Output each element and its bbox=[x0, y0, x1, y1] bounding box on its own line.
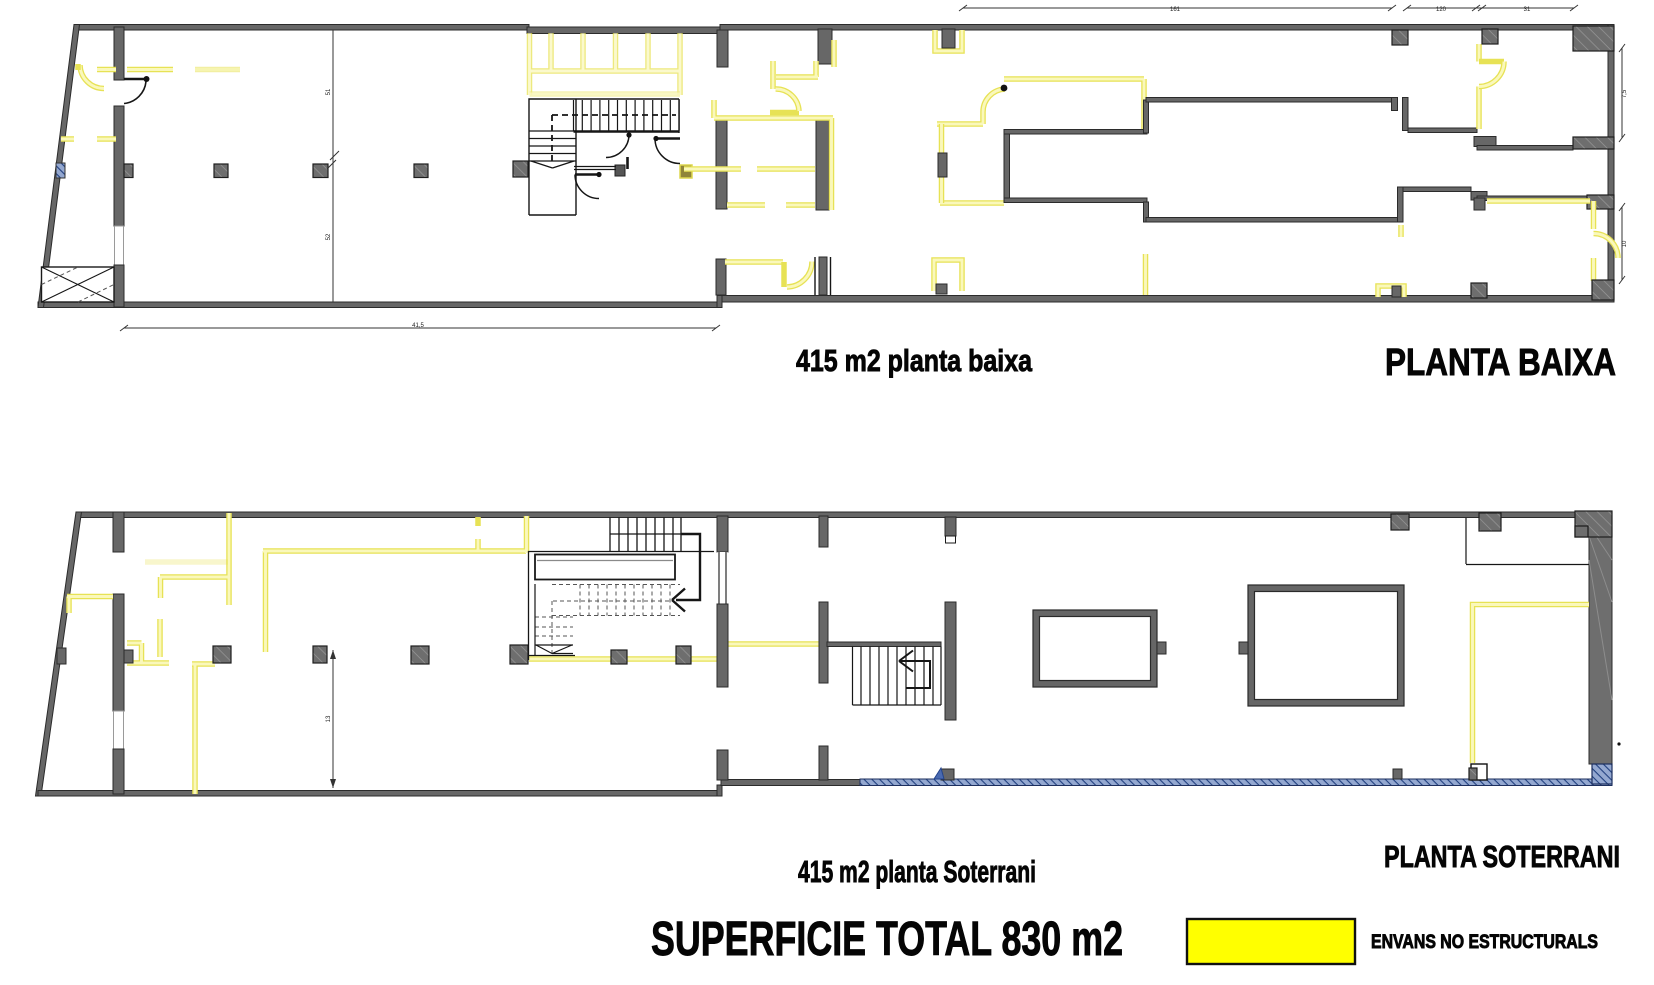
svg-text:7,5: 7,5 bbox=[1622, 89, 1628, 98]
svg-text:52: 52 bbox=[326, 233, 332, 240]
svg-text:PLANTA SOTERRANI: PLANTA SOTERRANI bbox=[1384, 839, 1620, 874]
svg-text:161: 161 bbox=[1170, 7, 1181, 13]
svg-text:415 m2 planta baixa: 415 m2 planta baixa bbox=[796, 343, 1033, 378]
svg-text:120: 120 bbox=[1436, 7, 1447, 13]
svg-text:415 m2 planta Soterrani: 415 m2 planta Soterrani bbox=[798, 854, 1036, 889]
svg-text:13: 13 bbox=[326, 715, 332, 722]
svg-text:10: 10 bbox=[1622, 240, 1628, 247]
svg-text:41,5: 41,5 bbox=[412, 323, 424, 329]
svg-text:PLANTA BAIXA: PLANTA BAIXA bbox=[1385, 342, 1616, 384]
svg-text:SUPERFICIE TOTAL 830 m2: SUPERFICIE TOTAL 830 m2 bbox=[651, 913, 1123, 966]
svg-text:51: 51 bbox=[326, 88, 332, 95]
svg-text:ENVANS NO ESTRUCTURALS: ENVANS NO ESTRUCTURALS bbox=[1371, 932, 1598, 953]
svg-text:31: 31 bbox=[1524, 7, 1531, 13]
